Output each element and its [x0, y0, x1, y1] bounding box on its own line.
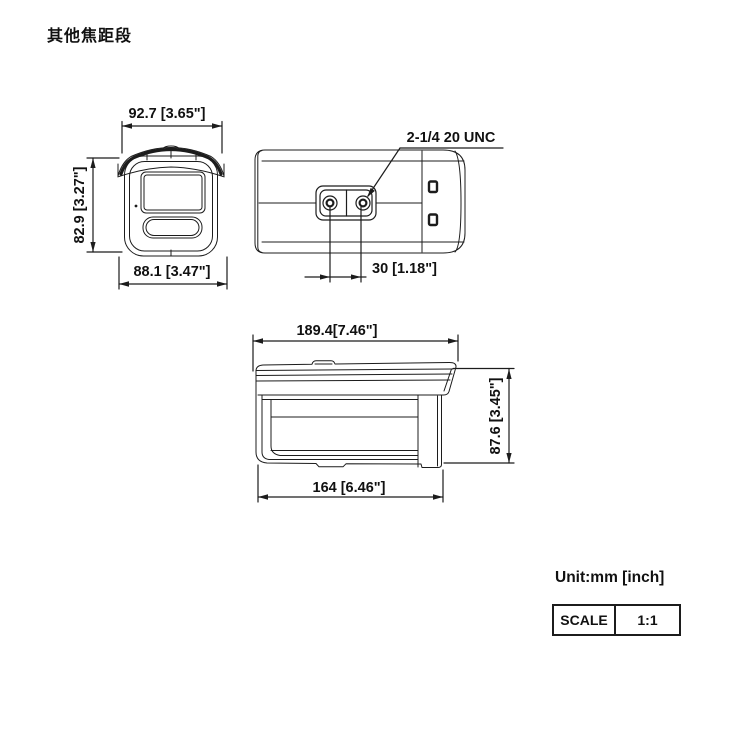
- side-length-overall-dim: 189.4[7.46"]: [296, 323, 377, 339]
- scale-label: SCALE: [554, 606, 616, 634]
- scale-value: 1:1: [616, 606, 679, 634]
- unit-note: Unit:mm [inch]: [555, 569, 664, 587]
- dimension-drawing: [0, 0, 750, 750]
- front-width-bottom-dim: 88.1 [3.47"]: [133, 264, 210, 280]
- hole-spacing-dim: 30 [1.18"]: [372, 261, 437, 277]
- mounting-plate: [316, 186, 376, 220]
- front-view-drawing: [118, 146, 224, 256]
- side-length-body-dim: 164 [6.46"]: [313, 480, 386, 496]
- front-width-top-dim: 92.7 [3.65"]: [128, 106, 205, 122]
- mic-hole: [135, 205, 138, 208]
- slot: [429, 182, 437, 193]
- drawing-sheet: 其他焦距段: [0, 0, 750, 750]
- scale-title-block: SCALE 1:1: [552, 604, 681, 636]
- side-height-dim: 87.6 [3.45"]: [488, 377, 504, 454]
- side-view-drawing: [256, 361, 456, 468]
- front-height-dim: 82.9 [3.27"]: [72, 166, 88, 243]
- bottom-view-drawing: [255, 150, 465, 253]
- side-view-dimensions: [253, 335, 514, 502]
- thread-spec-label: 2-1/4 20 UNC: [407, 130, 496, 146]
- slot: [429, 215, 437, 226]
